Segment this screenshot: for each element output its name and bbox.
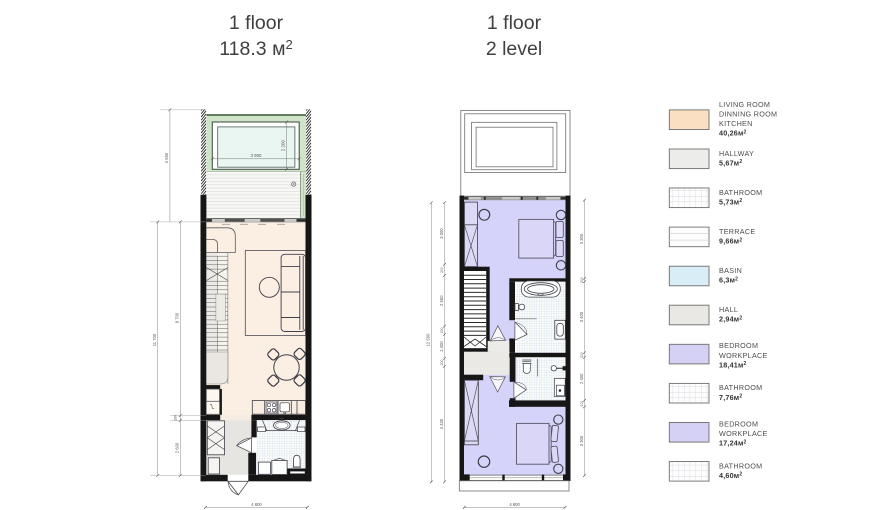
svg-text:BEDROOM: BEDROOM [719,341,758,350]
svg-text:4 650: 4 650 [164,152,169,163]
svg-text:1 400: 1 400 [439,341,444,352]
svg-text:18,41м2: 18,41м2 [719,360,747,369]
svg-text:4,60м2: 4,60м2 [719,471,742,480]
svg-text:LIVING ROOM: LIVING ROOM [719,100,770,109]
svg-text:8 700: 8 700 [175,312,180,323]
svg-text:TERRACE: TERRACE [719,227,755,236]
svg-text:WORKPLACE: WORKPLACE [719,351,768,360]
svg-text:2 200: 2 200 [281,140,286,152]
svg-text:4 800: 4 800 [509,502,520,507]
svg-text:HALLWAY: HALLWAY [719,149,754,158]
svg-text:1 floor: 1 floor [229,12,284,34]
svg-text:2 650: 2 650 [439,295,444,306]
svg-text:200: 200 [580,277,584,283]
svg-text:3 300: 3 300 [579,233,584,244]
svg-text:1 floor: 1 floor [487,12,542,34]
svg-text:118.3 м2: 118.3 м2 [219,37,292,60]
svg-text:2 400: 2 400 [579,373,584,384]
svg-text:5,73м2: 5,73м2 [719,197,742,206]
svg-text:HALL: HALL [719,305,738,314]
svg-text:2 600: 2 600 [175,442,180,453]
svg-text:200: 200 [174,415,178,421]
svg-text:200: 200 [440,327,444,333]
svg-text:BATHROOM: BATHROOM [719,383,762,392]
svg-text:BATHROOM: BATHROOM [719,188,762,197]
svg-text:200: 200 [580,352,584,358]
svg-text:7,76м2: 7,76м2 [719,393,742,402]
svg-text:12 500: 12 500 [426,333,431,346]
svg-text:WORKPLACE: WORKPLACE [719,429,768,438]
svg-text:3 400: 3 400 [579,311,584,322]
svg-text:11 700: 11 700 [152,333,157,346]
svg-text:9,66м2: 9,66м2 [719,237,742,246]
svg-text:4 800: 4 800 [251,502,262,507]
svg-text:5,67м2: 5,67м2 [719,158,742,167]
svg-text:40,26м2: 40,26м2 [719,129,747,138]
svg-text:BASIN: BASIN [719,266,742,275]
svg-text:BATHROOM: BATHROOM [719,461,762,470]
svg-text:2,94м2: 2,94м2 [719,315,742,324]
svg-text:200: 200 [580,401,584,407]
svg-text:200: 200 [440,267,444,273]
svg-text:KITCHEN: KITCHEN [719,119,753,128]
svg-text:4 400: 4 400 [439,418,444,429]
svg-text:200: 200 [440,359,444,365]
svg-text:2 level: 2 level [486,38,542,60]
svg-text:BEDROOM: BEDROOM [719,419,758,428]
svg-text:3 000: 3 000 [439,228,444,239]
svg-text:17,24м2: 17,24м2 [719,439,747,448]
svg-text:3 300: 3 300 [579,435,584,446]
svg-text:3 900: 3 900 [251,153,263,158]
svg-text:DINNING ROOM: DINNING ROOM [719,109,777,118]
